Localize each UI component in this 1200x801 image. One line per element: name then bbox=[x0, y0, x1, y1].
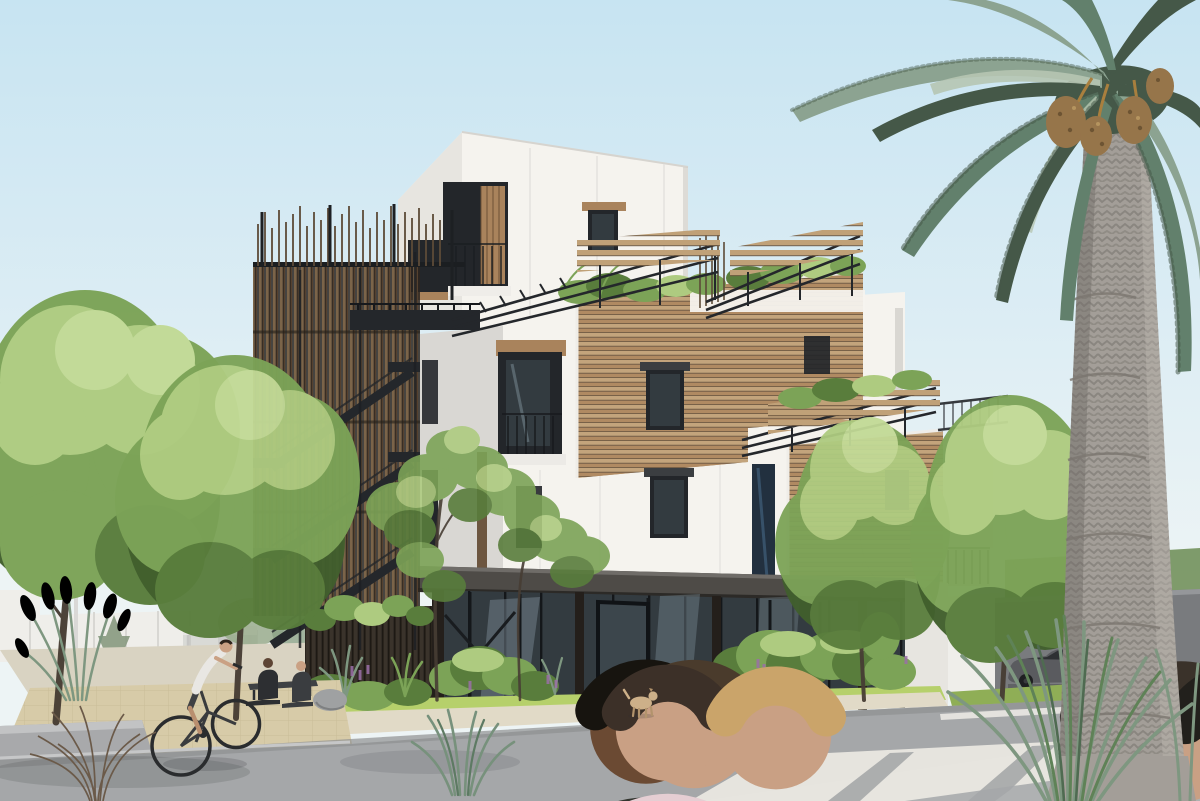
screen-window bbox=[640, 362, 690, 430]
bay-window bbox=[496, 340, 566, 465]
scene-canvas bbox=[0, 0, 1200, 801]
strip-window bbox=[422, 360, 438, 424]
architectural-rendering bbox=[0, 0, 1200, 801]
canopy-window bbox=[644, 468, 694, 538]
screen-window-small bbox=[804, 336, 830, 374]
